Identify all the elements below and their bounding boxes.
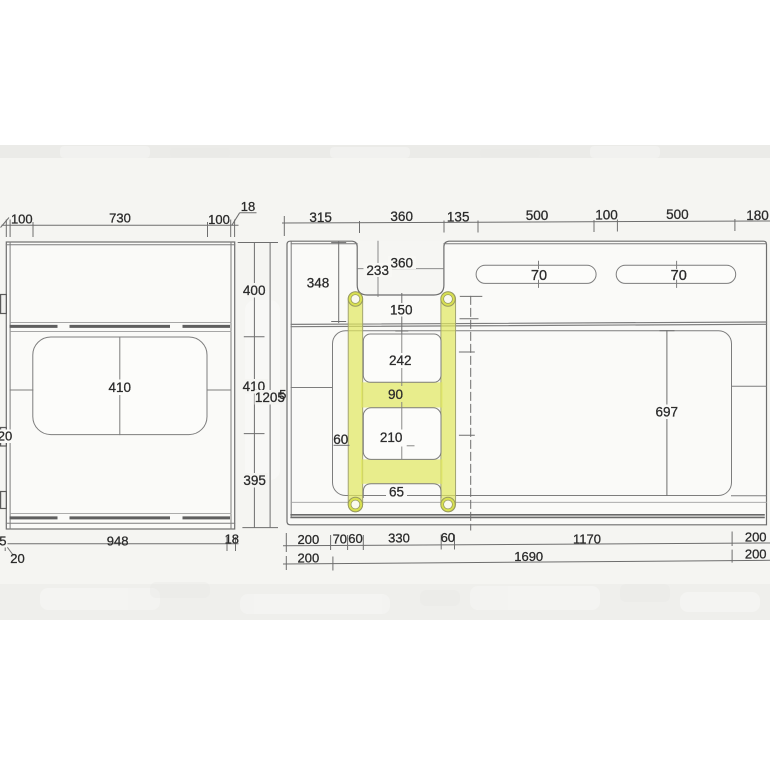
- svg-text:60: 60: [441, 530, 455, 545]
- svg-text:400: 400: [243, 283, 266, 298]
- svg-text:180: 180: [746, 208, 769, 223]
- svg-text:200: 200: [298, 551, 320, 566]
- svg-text:20: 20: [0, 428, 12, 443]
- svg-text:18: 18: [241, 199, 255, 214]
- svg-text:330: 330: [388, 531, 410, 546]
- svg-text:200: 200: [745, 547, 767, 562]
- svg-text:500: 500: [666, 207, 689, 222]
- svg-text:200: 200: [298, 532, 320, 547]
- svg-text:410: 410: [109, 380, 132, 395]
- svg-text:5: 5: [0, 533, 6, 548]
- svg-text:1690: 1690: [514, 549, 543, 564]
- svg-text:242: 242: [389, 353, 412, 368]
- svg-text:150: 150: [390, 303, 413, 318]
- svg-text:697: 697: [656, 404, 679, 419]
- svg-text:360: 360: [390, 209, 413, 224]
- svg-text:70: 70: [333, 531, 347, 546]
- svg-text:360: 360: [391, 256, 414, 271]
- svg-text:70: 70: [671, 268, 687, 284]
- svg-text:500: 500: [526, 208, 549, 223]
- svg-text:210: 210: [380, 430, 403, 445]
- svg-text:948: 948: [107, 533, 129, 548]
- svg-text:200: 200: [745, 530, 767, 545]
- svg-text:100: 100: [11, 212, 33, 227]
- svg-text:315: 315: [309, 210, 332, 225]
- svg-text:20: 20: [10, 551, 24, 566]
- svg-text:65: 65: [389, 485, 404, 500]
- svg-text:395: 395: [243, 473, 266, 488]
- svg-text:135: 135: [447, 210, 470, 225]
- svg-text:348: 348: [307, 276, 330, 291]
- svg-text:60: 60: [348, 531, 362, 546]
- svg-text:100: 100: [208, 212, 230, 227]
- svg-text:90: 90: [388, 387, 403, 402]
- svg-text:730: 730: [109, 211, 131, 226]
- svg-text:5: 5: [279, 387, 286, 402]
- svg-text:233: 233: [366, 263, 389, 278]
- svg-text:60: 60: [333, 432, 348, 447]
- svg-text:100: 100: [595, 208, 618, 223]
- svg-text:70: 70: [531, 268, 547, 284]
- svg-text:18: 18: [225, 532, 239, 547]
- svg-text:1170: 1170: [573, 531, 601, 546]
